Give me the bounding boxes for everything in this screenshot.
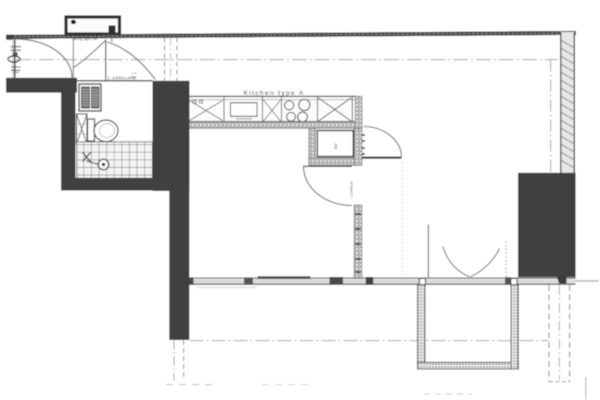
svg-text:1.4SRxLmtb: 1.4SRxLmtb: [108, 76, 137, 81]
svg-text:RF: RF: [334, 143, 339, 149]
svg-text:aDtg.qpc.tw: aDtg.qpc.tw: [73, 37, 97, 41]
svg-text:L.Oasth.i.Lam: L.Oasth.i.Lam: [71, 31, 102, 36]
svg-text:1.Cmrtq.ae: 1.Cmrtq.ae: [350, 181, 354, 198]
